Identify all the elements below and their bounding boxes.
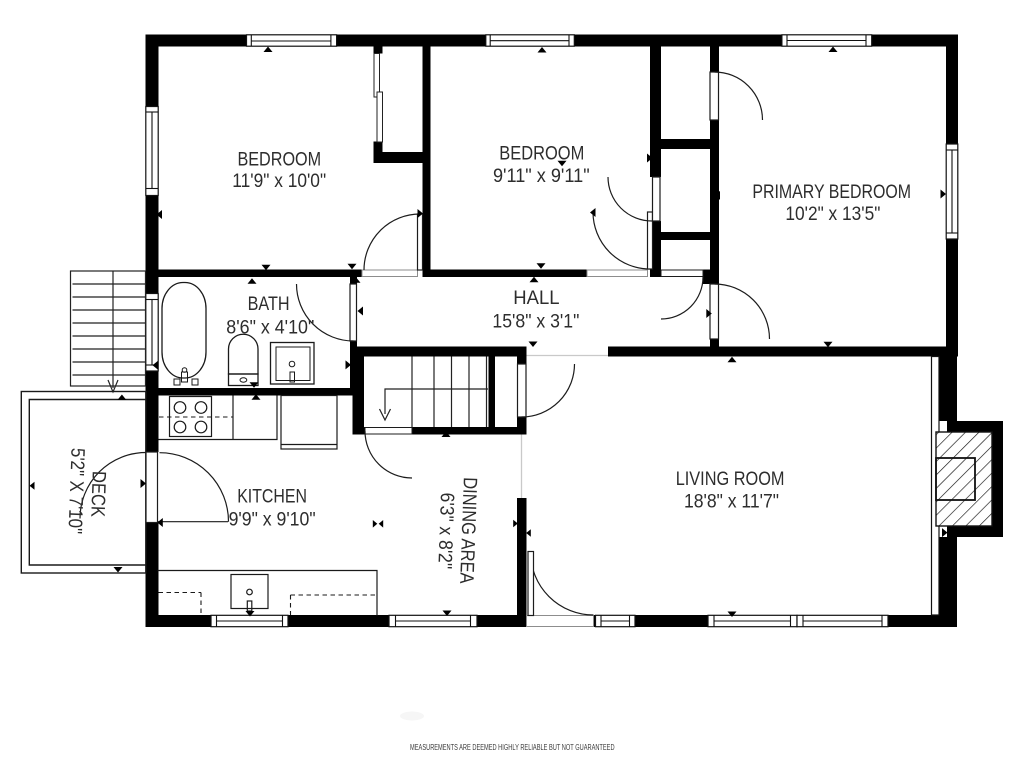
svg-text:9'11" x 9'11": 9'11" x 9'11" — [493, 165, 590, 187]
svg-text:BATH: BATH — [248, 293, 290, 315]
svg-text:9'9" x 9'10": 9'9" x 9'10" — [229, 508, 316, 530]
svg-text:18'8" x 11'7": 18'8" x 11'7" — [684, 490, 779, 512]
svg-text:11'9" x 10'0": 11'9" x 10'0" — [232, 170, 326, 192]
svg-text:MEASUREMENTS ARE DEEMED HIGHLY: MEASUREMENTS ARE DEEMED HIGHLY RELIABLE … — [410, 743, 615, 752]
svg-text:10'2" x 13'5": 10'2" x 13'5" — [785, 203, 880, 225]
svg-text:6'3" x 8'2": 6'3" x 8'2" — [433, 492, 458, 569]
svg-text:LIVING ROOM: LIVING ROOM — [676, 468, 785, 490]
svg-text:BEDROOM: BEDROOM — [237, 148, 321, 170]
svg-text:8'6" x 4'10": 8'6" x 4'10" — [226, 317, 314, 339]
svg-text:KITCHEN: KITCHEN — [237, 486, 307, 508]
svg-text:BEDROOM: BEDROOM — [499, 143, 584, 165]
svg-text:DECK: DECK — [86, 471, 110, 518]
svg-text:15'8" x 3'1": 15'8" x 3'1" — [492, 310, 579, 332]
svg-text:HALL: HALL — [513, 287, 559, 309]
svg-text:5'2" X 7'10": 5'2" X 7'10" — [64, 448, 89, 535]
svg-text:PRIMARY BEDROOM: PRIMARY BEDROOM — [752, 181, 911, 203]
